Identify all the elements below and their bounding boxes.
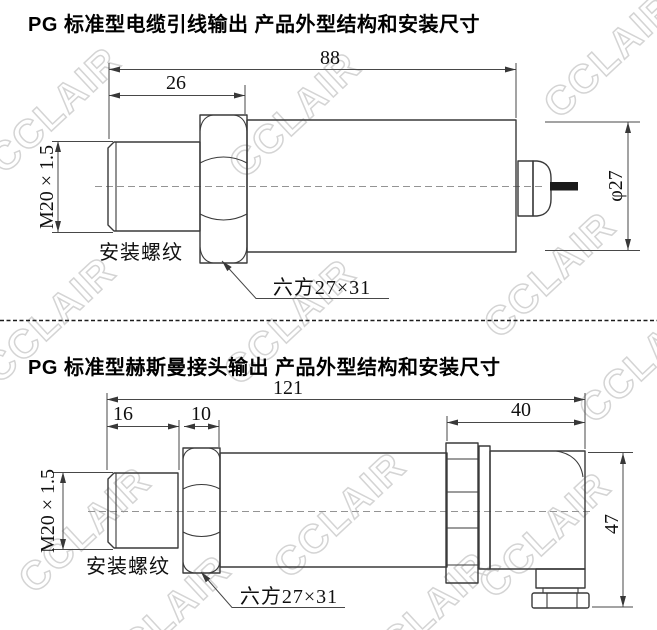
- svg-text:M20 × 1.5: M20 × 1.5: [36, 145, 58, 229]
- diagram2-drawing: 121 16 10: [37, 377, 633, 608]
- hirschmann-connector: [490, 451, 589, 608]
- mounting-thread: [108, 473, 178, 548]
- svg-text:47: 47: [601, 514, 623, 534]
- cable-gland: [518, 161, 551, 216]
- svg-text:六方27×31: 六方27×31: [240, 585, 338, 608]
- cable-lead: [550, 182, 578, 191]
- hex-note: 六方27×31: [199, 570, 345, 608]
- dim-thread-length: 16: [107, 403, 179, 470]
- svg-text:10: 10: [191, 403, 211, 425]
- dim-total-height: 47: [588, 453, 633, 608]
- mount-thread-label: 安装螺纹: [86, 555, 170, 578]
- svg-text:φ27: φ27: [605, 170, 627, 202]
- svg-text:六方27×31: 六方27×31: [273, 276, 371, 299]
- dim-thread-length: 26: [109, 72, 245, 114]
- hex-nut: [200, 115, 247, 263]
- hex-nut: [183, 448, 220, 573]
- diagram1-title: PG 标准型电缆引线输出 产品外型结构和安装尺寸: [28, 8, 480, 37]
- transmitter-body: [220, 453, 447, 567]
- connector-flange: [479, 446, 490, 569]
- dim-hex-width: 10: [184, 403, 219, 447]
- svg-text:121: 121: [273, 377, 303, 399]
- technical-drawing-page: CCLAIR CCLAIR CCLAIR CCLAIR CCLAIR CCLAI…: [0, 0, 657, 630]
- diagram1-drawing: 88 26 M20 × 1.5: [36, 47, 640, 299]
- hex-note: 六方27×31: [220, 259, 389, 299]
- svg-text:26: 26: [166, 72, 186, 94]
- svg-text:40: 40: [511, 399, 531, 421]
- svg-text:88: 88: [320, 47, 340, 69]
- pressure-transmitter-drawing: 88 26 M20 × 1.5: [0, 0, 657, 630]
- mount-thread-label: 安装螺纹: [99, 241, 183, 264]
- svg-text:M20 × 1.5: M20 × 1.5: [37, 469, 59, 553]
- diagram2-title: PG 标准型赫斯曼接头输出 产品外型结构和安装尺寸: [28, 351, 501, 380]
- svg-text:16: 16: [113, 403, 133, 425]
- dim-connector-width: 40: [447, 399, 585, 441]
- connector-ring: [446, 443, 478, 583]
